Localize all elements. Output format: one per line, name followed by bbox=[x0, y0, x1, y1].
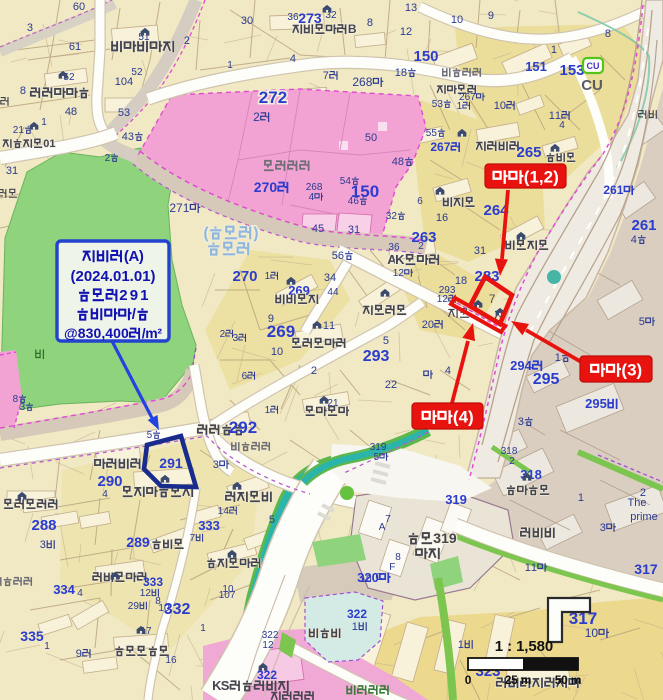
svg-text:1: 1 bbox=[227, 60, 233, 71]
svg-text:53: 53 bbox=[118, 107, 130, 119]
svg-text:1: 1 bbox=[458, 639, 464, 651]
svg-text:5: 5 bbox=[147, 430, 153, 441]
svg-text:8: 8 bbox=[395, 552, 401, 563]
svg-text:14: 14 bbox=[218, 506, 230, 517]
svg-text:11: 11 bbox=[323, 320, 335, 332]
svg-text:): ) bbox=[253, 225, 258, 242]
svg-text:18: 18 bbox=[395, 67, 407, 79]
svg-text:55: 55 bbox=[426, 128, 438, 139]
svg-text:2: 2 bbox=[311, 365, 317, 377]
svg-text:13: 13 bbox=[405, 2, 417, 14]
svg-text:A: A bbox=[379, 522, 386, 533]
svg-text:46: 46 bbox=[348, 196, 360, 207]
svg-text:32: 32 bbox=[386, 211, 398, 222]
svg-text:1: 1 bbox=[551, 44, 557, 56]
svg-text:12: 12 bbox=[400, 26, 412, 38]
svg-text:8: 8 bbox=[605, 28, 611, 40]
svg-text:@830,400: @830,400 bbox=[64, 325, 129, 341]
svg-text:270: 270 bbox=[254, 179, 278, 195]
svg-text:268: 268 bbox=[352, 75, 372, 89]
svg-text:20: 20 bbox=[422, 319, 434, 331]
svg-text:270: 270 bbox=[233, 268, 258, 285]
svg-text:1: 1 bbox=[265, 405, 271, 416]
svg-text:3: 3 bbox=[40, 539, 46, 551]
svg-text:3: 3 bbox=[518, 416, 524, 428]
svg-text:4: 4 bbox=[559, 120, 565, 131]
svg-text:3: 3 bbox=[213, 459, 219, 471]
svg-text:(1,2): (1,2) bbox=[524, 168, 559, 187]
svg-text:322: 322 bbox=[347, 607, 367, 621]
svg-text:31: 31 bbox=[348, 224, 360, 236]
svg-text:292: 292 bbox=[229, 418, 257, 437]
svg-text:3: 3 bbox=[600, 522, 606, 534]
svg-text:319: 319 bbox=[433, 530, 457, 546]
svg-text:5: 5 bbox=[374, 452, 380, 463]
svg-text:291: 291 bbox=[159, 455, 183, 471]
svg-text:293: 293 bbox=[363, 348, 390, 365]
svg-text:267: 267 bbox=[430, 140, 450, 154]
svg-text:44: 44 bbox=[327, 287, 339, 298]
svg-text:4: 4 bbox=[445, 365, 451, 377]
svg-text:269: 269 bbox=[267, 322, 295, 341]
svg-text:320: 320 bbox=[357, 570, 379, 585]
svg-text:288: 288 bbox=[32, 517, 57, 534]
svg-text:AK: AK bbox=[387, 252, 405, 267]
svg-text:9: 9 bbox=[76, 648, 82, 660]
svg-text:6: 6 bbox=[242, 371, 248, 382]
svg-text:30: 30 bbox=[241, 15, 253, 27]
svg-text:3: 3 bbox=[20, 402, 26, 413]
svg-text:CU: CU bbox=[587, 61, 600, 71]
svg-text:295: 295 bbox=[533, 371, 560, 388]
svg-text:3: 3 bbox=[233, 333, 239, 344]
svg-text:5: 5 bbox=[269, 514, 275, 526]
svg-text:50: 50 bbox=[365, 132, 377, 144]
svg-text:272: 272 bbox=[259, 88, 287, 107]
svg-text:291: 291 bbox=[119, 287, 148, 304]
svg-text:31: 31 bbox=[474, 245, 486, 257]
svg-text:34: 34 bbox=[324, 272, 336, 284]
svg-text:10: 10 bbox=[271, 346, 283, 358]
svg-text:9: 9 bbox=[488, 10, 494, 22]
svg-text:16: 16 bbox=[436, 212, 448, 224]
svg-text:2: 2 bbox=[509, 456, 515, 467]
svg-text:54: 54 bbox=[340, 176, 352, 187]
svg-text:334: 334 bbox=[53, 582, 75, 597]
svg-text:5: 5 bbox=[639, 316, 645, 328]
svg-text:53: 53 bbox=[432, 99, 444, 110]
svg-text:52: 52 bbox=[131, 67, 143, 78]
svg-text:12: 12 bbox=[437, 294, 449, 305]
svg-text:6: 6 bbox=[417, 196, 423, 207]
svg-text:8: 8 bbox=[13, 394, 19, 405]
svg-text:prime: prime bbox=[630, 511, 658, 523]
svg-text:2: 2 bbox=[253, 110, 260, 124]
svg-text:2: 2 bbox=[105, 153, 111, 164]
svg-text:KS: KS bbox=[212, 678, 230, 693]
svg-text:267: 267 bbox=[459, 92, 476, 103]
svg-text:45: 45 bbox=[312, 223, 324, 235]
svg-text:29: 29 bbox=[128, 601, 140, 612]
svg-text:333: 333 bbox=[198, 518, 220, 533]
svg-text:12: 12 bbox=[393, 268, 405, 279]
svg-text:1: 1 bbox=[265, 271, 271, 282]
svg-text:10: 10 bbox=[494, 100, 506, 112]
svg-text:4: 4 bbox=[77, 588, 83, 599]
svg-text:0: 0 bbox=[465, 673, 472, 687]
svg-text:1 : 1,580: 1 : 1,580 bbox=[495, 638, 553, 655]
svg-text:21: 21 bbox=[327, 398, 339, 409]
svg-text:18: 18 bbox=[455, 275, 467, 287]
svg-text:25 m: 25 m bbox=[505, 673, 532, 687]
svg-text:295: 295 bbox=[585, 396, 607, 411]
svg-text:317: 317 bbox=[634, 561, 658, 577]
svg-text:1: 1 bbox=[200, 623, 206, 634]
svg-text:4: 4 bbox=[309, 192, 315, 203]
svg-text:8: 8 bbox=[155, 596, 161, 607]
svg-text:50 m: 50 m bbox=[555, 673, 582, 687]
svg-text:8: 8 bbox=[20, 85, 26, 97]
svg-text:36: 36 bbox=[287, 12, 299, 23]
svg-text:7: 7 bbox=[190, 533, 196, 544]
svg-text:265: 265 bbox=[517, 144, 542, 161]
svg-text:1: 1 bbox=[352, 621, 358, 633]
svg-text:333: 333 bbox=[143, 575, 163, 589]
svg-text:150: 150 bbox=[414, 48, 439, 65]
svg-text:16: 16 bbox=[165, 655, 177, 666]
svg-text:48: 48 bbox=[65, 106, 77, 118]
svg-text:61: 61 bbox=[69, 41, 81, 53]
svg-text:10: 10 bbox=[451, 14, 463, 26]
svg-text:/m²: /m² bbox=[142, 325, 163, 341]
svg-text:01: 01 bbox=[43, 138, 55, 150]
svg-text:2: 2 bbox=[184, 35, 190, 47]
svg-text:(A): (A) bbox=[124, 248, 144, 265]
svg-text:3: 3 bbox=[27, 22, 33, 34]
svg-text:4: 4 bbox=[631, 234, 637, 246]
svg-text:2: 2 bbox=[418, 241, 424, 252]
svg-text:4: 4 bbox=[290, 53, 296, 65]
svg-text:B: B bbox=[348, 22, 357, 36]
svg-text:261: 261 bbox=[603, 183, 623, 197]
svg-text:60: 60 bbox=[73, 1, 85, 13]
svg-text:8: 8 bbox=[367, 17, 373, 29]
svg-text:2: 2 bbox=[220, 329, 226, 340]
svg-text:(: ( bbox=[203, 225, 209, 242]
svg-text:12: 12 bbox=[262, 640, 274, 651]
svg-text:104: 104 bbox=[115, 76, 133, 88]
svg-text:(2024.01.01): (2024.01.01) bbox=[71, 268, 156, 285]
svg-text:7: 7 bbox=[489, 292, 496, 306]
svg-text:56: 56 bbox=[332, 250, 344, 262]
svg-text:1: 1 bbox=[44, 641, 50, 652]
svg-text:271: 271 bbox=[169, 201, 189, 215]
svg-text:12: 12 bbox=[140, 588, 152, 599]
svg-text:43: 43 bbox=[122, 131, 134, 143]
svg-text:7: 7 bbox=[323, 70, 329, 82]
svg-text:290: 290 bbox=[98, 473, 123, 490]
svg-text:11: 11 bbox=[525, 562, 537, 574]
svg-text:4: 4 bbox=[102, 489, 108, 500]
svg-text:31: 31 bbox=[6, 165, 18, 177]
svg-text:22: 22 bbox=[385, 379, 397, 391]
svg-text:(4): (4) bbox=[453, 408, 474, 427]
svg-text:1: 1 bbox=[578, 492, 584, 504]
svg-text:263: 263 bbox=[412, 229, 437, 246]
svg-text:The: The bbox=[628, 497, 647, 509]
svg-text:5: 5 bbox=[383, 335, 389, 347]
svg-text:10: 10 bbox=[585, 626, 599, 640]
svg-text:1: 1 bbox=[41, 117, 47, 128]
svg-text:335: 335 bbox=[20, 628, 44, 644]
svg-text:332: 332 bbox=[164, 601, 191, 618]
svg-text:7: 7 bbox=[385, 514, 391, 525]
svg-text:48: 48 bbox=[392, 156, 404, 168]
svg-text:CU: CU bbox=[581, 77, 603, 94]
svg-text:261: 261 bbox=[632, 217, 657, 234]
svg-text:21: 21 bbox=[13, 125, 25, 136]
svg-text:151: 151 bbox=[525, 59, 547, 74]
svg-text:294: 294 bbox=[510, 358, 532, 373]
svg-text:319: 319 bbox=[445, 492, 467, 507]
svg-text:289: 289 bbox=[126, 534, 150, 550]
svg-text:107: 107 bbox=[219, 590, 236, 601]
svg-text:1: 1 bbox=[555, 352, 561, 364]
svg-text:F: F bbox=[389, 562, 395, 573]
svg-text:(3): (3) bbox=[621, 361, 642, 380]
